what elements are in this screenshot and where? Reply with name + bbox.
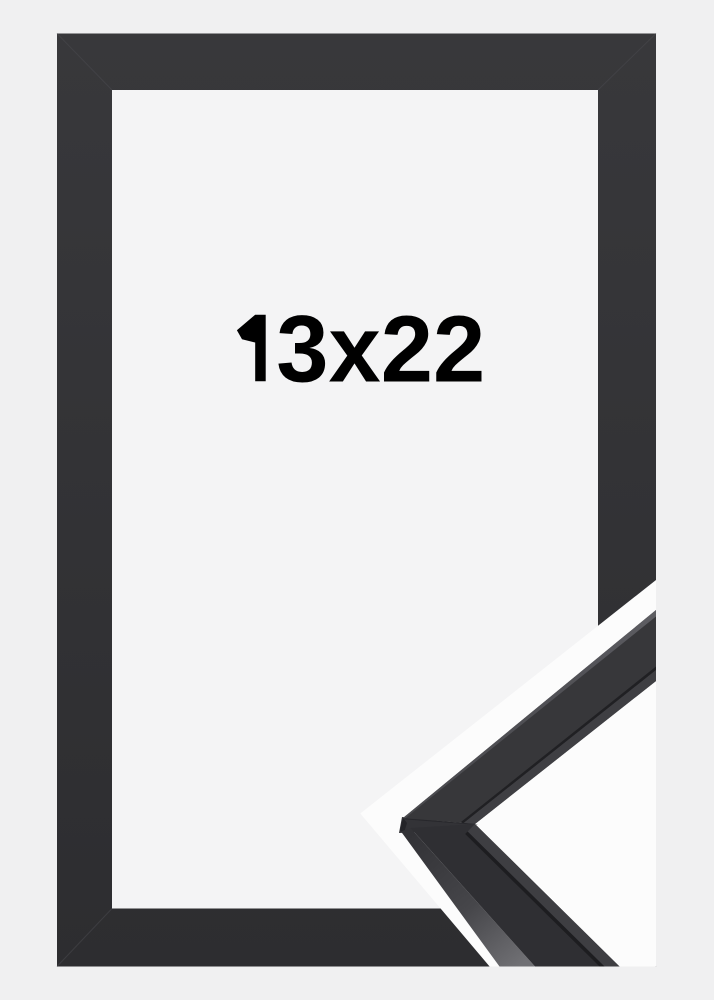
svg-text:3x22: 3x22 (276, 297, 485, 403)
